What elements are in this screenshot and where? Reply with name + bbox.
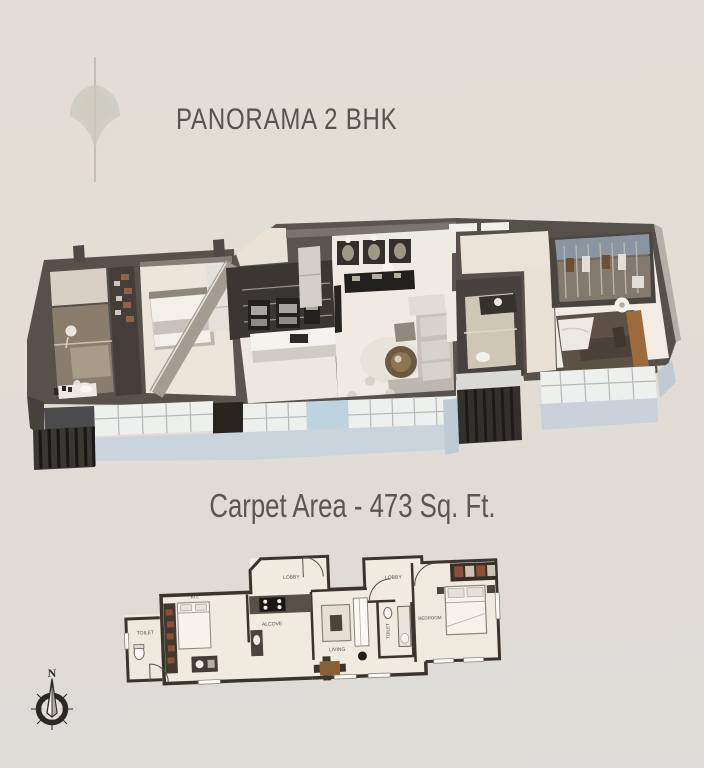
svg-text:LOBBY: LOBBY — [385, 574, 403, 581]
svg-text:TOILET: TOILET — [385, 623, 391, 639]
svg-text:KIT.: KIT. — [191, 594, 200, 600]
svg-text:BEDROOM: BEDROOM — [418, 615, 442, 621]
svg-text:ALCOVE: ALCOVE — [262, 621, 283, 628]
svg-text:LOBBY: LOBBY — [283, 574, 301, 581]
svg-text:N: N — [48, 666, 57, 680]
svg-text:TOILET: TOILET — [137, 630, 155, 637]
svg-text:LIVING: LIVING — [329, 647, 346, 654]
